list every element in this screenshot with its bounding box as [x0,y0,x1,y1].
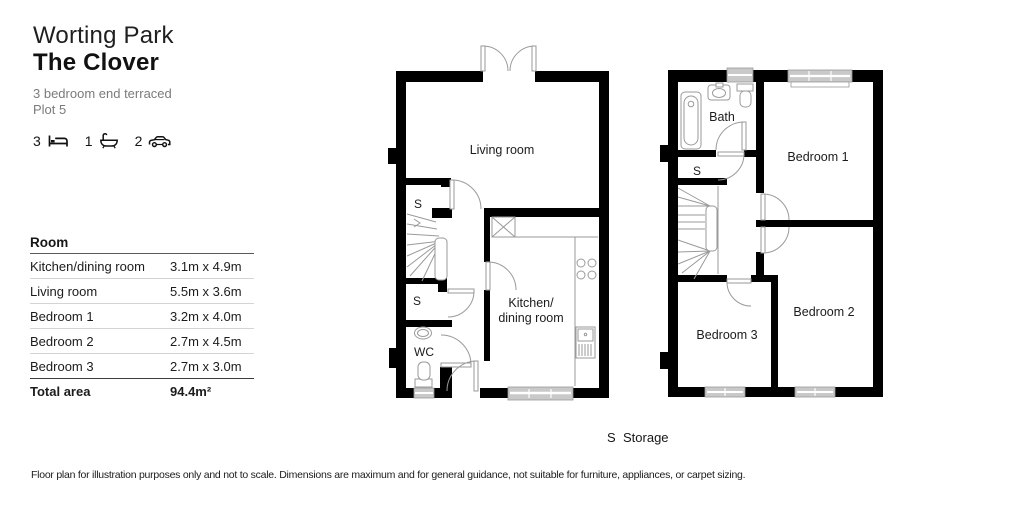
legend-label: Storage [623,430,669,445]
room-label-bedroom3: Bedroom 3 [696,328,757,342]
floor-plans-canvas: Living room Kitchen/ dining room S S WC [0,0,1024,512]
room-label-storage1: S [414,197,422,211]
ground-floor-plan: Living room Kitchen/ dining room S S WC [388,46,609,400]
room-label-storage2: S [413,294,421,308]
room-label-bath: Bath [709,110,735,124]
room-label-bedroom1: Bedroom 1 [787,150,848,164]
floorplan-sheet: Worting Park The Clover 3 bedroom end te… [0,0,1024,512]
room-label-wc: WC [414,345,434,359]
hob-ring [577,259,585,267]
first-stairs [678,186,718,279]
room-label-living: Living room [470,143,535,157]
room-label-bedroom2: Bedroom 2 [793,305,854,319]
ground-stairs [407,214,447,281]
legend: S Storage [607,430,669,445]
first-floor-plan: Bath S Bedroom 1 Bedroom 2 Bedroom 3 [660,68,883,397]
bathroom-toilet [737,84,753,91]
room-label-kitchen-line1: Kitchen/ [508,296,554,310]
room-label-storage-ff: S [693,164,701,178]
room-label-kitchen-line2: dining room [498,311,563,325]
legend-symbol: S [607,430,616,445]
disclaimer-text: Floor plan for illustration purposes onl… [31,469,791,481]
